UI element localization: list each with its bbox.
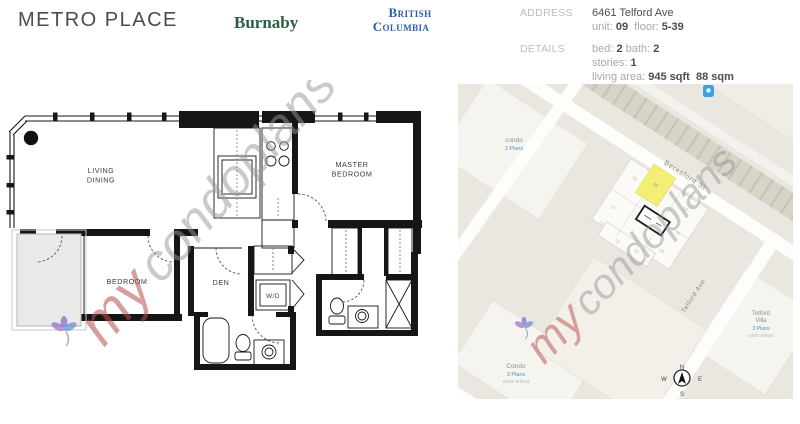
details-row: DETAILS bed: 2 bath: 2 stories: 1 living…	[520, 42, 794, 85]
transit-station-icon	[703, 85, 714, 97]
master-label-2: BEDROOM	[332, 170, 373, 179]
shower-icon	[386, 280, 412, 328]
address-value: 6461 Telford Ave	[592, 6, 684, 20]
ensuite-bathroom	[329, 280, 412, 328]
floor-label: floor:	[634, 21, 658, 33]
unit-label: unit:	[592, 21, 613, 33]
stories-value: 1	[631, 57, 637, 69]
province-line2: Columbia	[356, 20, 446, 34]
villa-name-2: Villa	[755, 318, 767, 324]
toilet-icon	[329, 298, 345, 324]
sink-icon	[254, 340, 284, 366]
bathtub-icon	[203, 318, 229, 363]
province-line1: British	[356, 6, 446, 20]
dining-label: DINING	[87, 176, 115, 185]
site-map: 09 08 07 06 05 04 03 02 01 Beresford St …	[458, 84, 793, 399]
details-label: DETAILS	[520, 42, 592, 85]
address-row: ADDRESS 6461 Telford Ave unit: 09 floor:…	[520, 6, 794, 35]
address-label: ADDRESS	[520, 6, 592, 35]
south-condo-plans-link[interactable]: 3 Plans	[507, 372, 526, 378]
bath-value: 2	[653, 43, 659, 55]
stories-label: stories:	[592, 57, 627, 69]
north-condo-plans-link[interactable]: 3 Plans	[505, 146, 524, 152]
villa-plans-link[interactable]: 3 Plans	[752, 326, 770, 332]
page-title: METRO PLACE	[18, 9, 178, 32]
city-logo: Burnaby	[234, 13, 298, 33]
floor-value: 5-39	[662, 21, 684, 33]
province-logo: British Columbia	[356, 6, 446, 33]
bed-label: bed:	[592, 43, 613, 55]
compass-s: S	[680, 392, 684, 398]
north-condo-name: condo	[505, 137, 523, 144]
bath-label: bath:	[626, 43, 650, 55]
page: METRO PLACE Burnaby British Columbia ADD…	[0, 0, 800, 424]
living-area-sqm: 88 sqm	[696, 71, 734, 83]
toilet-icon	[235, 335, 251, 361]
bed-value: 2	[616, 43, 622, 55]
master-label-1: MASTER	[336, 160, 369, 169]
floor-plan: LIVING DINING MASTER BEDROOM BEDROOM DEN…	[0, 80, 456, 424]
main-bathroom	[203, 318, 284, 366]
south-condo-address: 6533 Telford	[503, 379, 530, 385]
living-area-label: living area:	[592, 71, 645, 83]
compass-e: E	[698, 377, 702, 383]
compass-w: W	[661, 377, 667, 383]
column-dot	[24, 131, 38, 145]
villa-address: 6460 Telford	[748, 333, 774, 338]
sink-icon	[348, 306, 378, 328]
den-label: DEN	[213, 278, 230, 287]
unit-value: 09	[616, 21, 628, 33]
south-condo-name: Condo	[506, 363, 526, 370]
living-label: LIVING	[88, 166, 115, 175]
wd-label: W/D	[266, 293, 280, 300]
villa-name-1: Telford	[752, 311, 770, 317]
living-area-sqft: 945 sqft	[648, 71, 690, 83]
